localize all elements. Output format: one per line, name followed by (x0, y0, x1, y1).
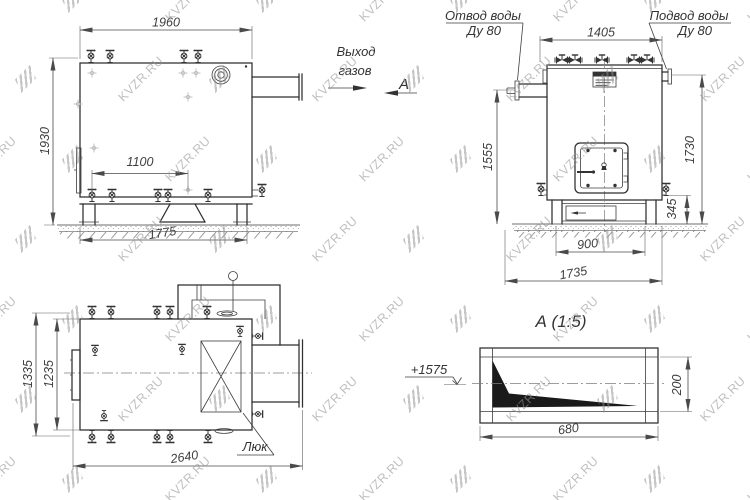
dim-1555: 1555 (481, 90, 512, 224)
drain-valves (87, 184, 266, 202)
gas-outlet-line1: Выход (336, 44, 375, 59)
dim-text-345: 345 (665, 199, 679, 220)
front-view: Отвод воды Ду 80 Подвод воды Ду 80 1405 … (445, 8, 731, 285)
edge-valves-top (87, 306, 233, 444)
section-title: А (1:5) (534, 312, 586, 331)
dim-text-1335: 1335 (21, 360, 35, 388)
top-view-door (70, 350, 80, 400)
gauge-circle (229, 272, 238, 281)
drawer-handle-arrow-icon (571, 211, 579, 214)
view-marker-arrow-icon (384, 90, 398, 96)
dim-text-1735: 1735 (558, 264, 588, 283)
dim-text-2640: 2640 (169, 448, 200, 466)
flue-duct-top (252, 340, 303, 407)
water-inlet-pipe (662, 69, 672, 84)
boiler-body-top (80, 319, 252, 430)
dim-345: 345 (665, 196, 691, 225)
boiler-body-side (80, 63, 252, 197)
surface-valves-top (91, 326, 263, 422)
inlet-label-line2: Ду 80 (676, 23, 713, 38)
view-marker-letter: А (398, 76, 409, 93)
dim-text-1960: 1960 (152, 16, 180, 30)
dim-text-900: 900 (576, 236, 598, 252)
inspection-hatch (201, 341, 241, 412)
dim-text-1405: 1405 (587, 26, 615, 40)
grate-wedge (493, 361, 639, 408)
dim-text-1730: 1730 (683, 136, 697, 164)
phantom-cross-marks (74, 69, 201, 195)
inlet-label-line1: Подвод воды (650, 8, 729, 23)
flue-duct-side (252, 74, 302, 100)
elevation-text: +1575 (411, 362, 448, 377)
side-drain-valves-front (536, 183, 670, 196)
outlet-label-line2: Ду 80 (465, 23, 502, 38)
dim-1930: 1930 (38, 58, 78, 225)
side-view: 1960 1930 1100 1775 (38, 16, 302, 245)
dim-text-200: 200 (670, 375, 684, 397)
dim-text-680: 680 (557, 421, 580, 438)
base-front (552, 200, 656, 224)
dim-200: 200 (660, 357, 692, 412)
dim-1100: 1100 (92, 155, 188, 196)
ground-side (57, 225, 300, 239)
furnace-door (575, 143, 628, 193)
ground-front (512, 224, 708, 238)
dim-text-1235: 1235 (42, 360, 56, 388)
dim-text-1555: 1555 (481, 143, 495, 171)
water-outlet-pipe (507, 70, 547, 100)
dim-text-1775: 1775 (148, 224, 178, 242)
view-direction-marker: А (384, 76, 417, 96)
dim-1405: 1405 (540, 26, 662, 63)
section-view: А (1:5) +1575 680 200 (405, 312, 692, 441)
gas-flow-arrow-icon (353, 85, 367, 91)
support-frame-side (79, 204, 252, 225)
hatch-leader-label: Люк (237, 413, 274, 455)
dim-text-1930: 1930 (38, 127, 52, 155)
top-view: Люк 1335 1235 2640 (21, 272, 312, 471)
drawing-svg: 1960 1930 1100 1775 Выход газов А (0, 0, 750, 500)
inlet-leader-label: Подвод воды Ду 80 (649, 8, 731, 69)
gas-outlet-line2: газов (338, 63, 371, 78)
rear-flue-box (178, 272, 280, 346)
dim-1235: 1235 (42, 319, 80, 430)
outlet-label-line1: Отвод воды (445, 8, 521, 23)
outlet-leader-label: Отвод воды Ду 80 (445, 8, 523, 80)
gas-outlet-label: Выход газов (328, 44, 376, 91)
dim-2640: 2640 (73, 403, 303, 470)
top-flange-circle (212, 65, 247, 84)
top-valves (86, 50, 202, 63)
dim-1960: 1960 (80, 16, 252, 60)
elevation-mark: +1575 (405, 362, 466, 385)
dim-text-1100: 1100 (127, 155, 154, 169)
dim-680: 680 (480, 421, 658, 441)
boiler-drawing: 1960 1930 1100 1775 Выход газов А (0, 0, 750, 500)
